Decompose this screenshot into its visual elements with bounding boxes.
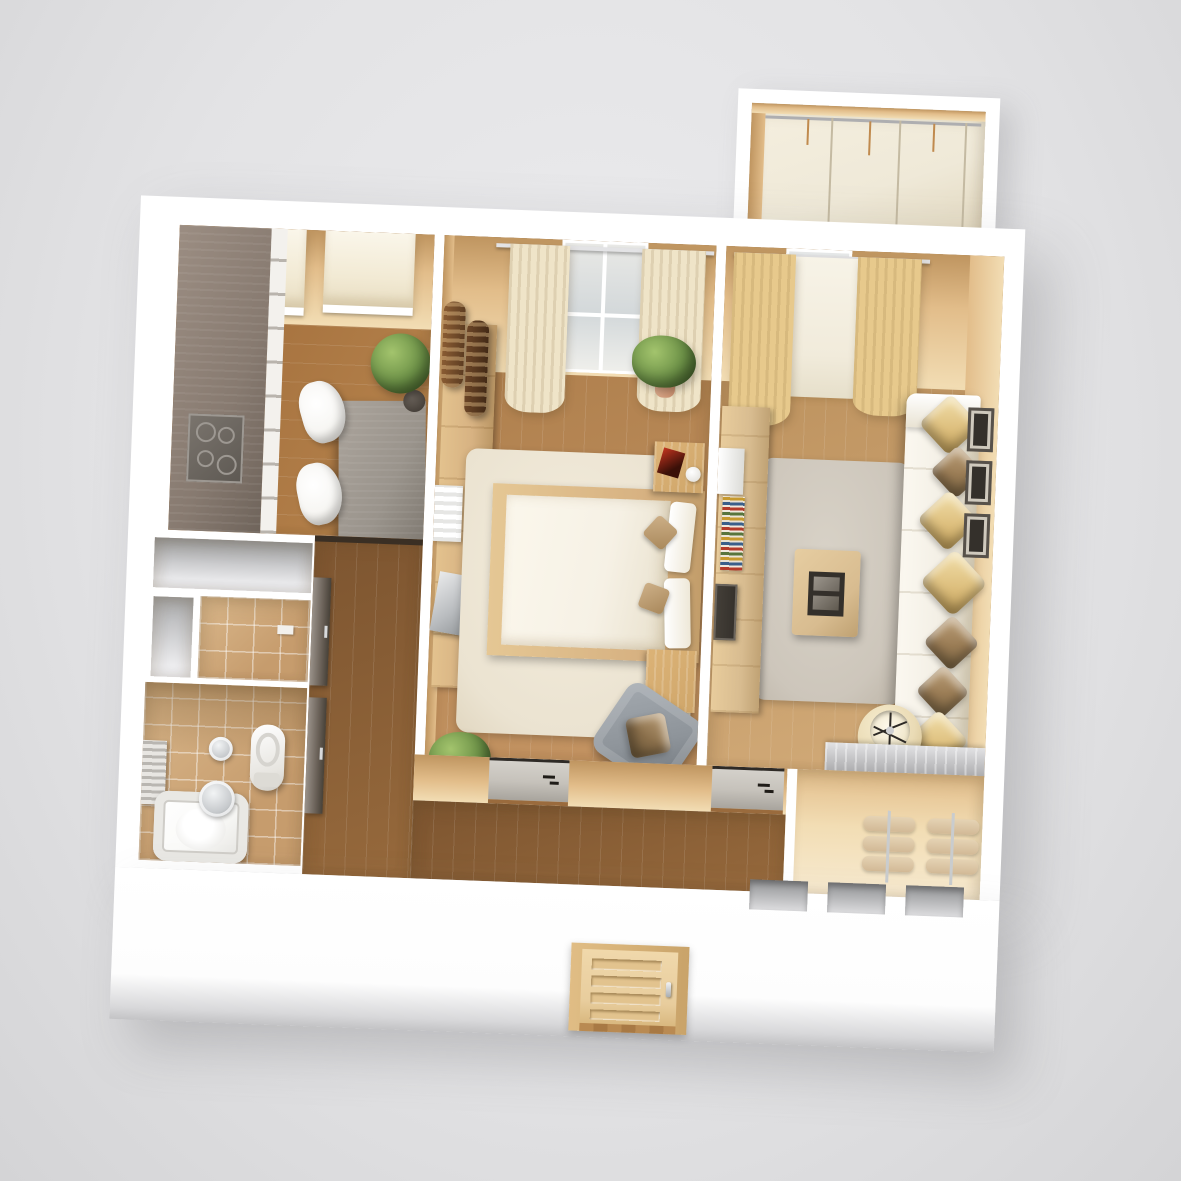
- living-room: [707, 246, 1005, 776]
- closet-door-dark: [309, 577, 331, 686]
- topiary-plant: [370, 332, 432, 394]
- kitchen-roman-blind: [323, 231, 416, 310]
- balcony-walls: [733, 88, 1000, 238]
- door-panel: [590, 992, 660, 1006]
- dining-table: [338, 401, 425, 540]
- decor-vase: [441, 301, 466, 388]
- bathroom: [138, 682, 307, 866]
- render-backdrop: [0, 0, 1181, 1181]
- bed-pillow: [664, 578, 691, 648]
- wall-niche: [905, 885, 964, 917]
- cooktop: [186, 413, 245, 483]
- interior-door-living: [711, 766, 785, 811]
- decor-vase: [464, 320, 490, 417]
- glass-bowl: [208, 736, 233, 761]
- armchair-pillow: [625, 712, 672, 759]
- nightstand: [653, 441, 705, 493]
- door-handle: [758, 784, 770, 787]
- burner: [216, 455, 237, 476]
- towel-rack: [925, 818, 979, 880]
- wall-niche: [749, 879, 808, 911]
- burner: [196, 422, 217, 443]
- wall-niche: [827, 882, 886, 914]
- coffee-table: [792, 549, 861, 637]
- closet-door-dark: [304, 697, 326, 814]
- tv-screen: [713, 584, 737, 641]
- apartment-floor-plan: [0, 0, 1181, 1181]
- media-device: [717, 448, 745, 495]
- window-mullion: [961, 123, 967, 233]
- picture-frame: [963, 513, 991, 558]
- pillow-bronze: [916, 665, 970, 719]
- kitchen-counter: [168, 225, 272, 533]
- gold-curtain-left: [728, 252, 797, 426]
- pillow-bronze: [923, 615, 980, 672]
- door-panel: [591, 975, 661, 989]
- red-book: [657, 447, 685, 478]
- hallway-vertical: [302, 535, 423, 878]
- blind-cord: [806, 119, 809, 145]
- picture-frame: [967, 407, 995, 452]
- door-panel: [592, 958, 662, 972]
- towel-rack: [861, 816, 915, 878]
- balcony: [747, 103, 986, 238]
- entrance-door: [580, 949, 679, 1027]
- toilet-seat: [255, 732, 280, 767]
- door-handle: [319, 748, 322, 760]
- window-mullion: [895, 120, 901, 230]
- burner: [197, 450, 215, 468]
- door-handle: [765, 790, 774, 793]
- door-handle: [324, 626, 327, 638]
- table-tray: [807, 571, 845, 616]
- book-stack: [720, 496, 745, 571]
- toilet-tank: [253, 772, 280, 787]
- pillow-gold: [920, 549, 988, 617]
- bedroom-curtain-left: [504, 244, 570, 414]
- mattress-duvet: [501, 495, 671, 651]
- wc-room: [198, 596, 311, 682]
- narrow-niche: [151, 596, 194, 677]
- radiator: [433, 485, 463, 542]
- kitchen: [168, 225, 435, 540]
- blind-cord: [868, 121, 871, 155]
- entrance-door-frame: [568, 942, 689, 1034]
- tray-item: [813, 577, 840, 592]
- hallway-horizontal: [410, 800, 786, 892]
- window-mullion: [599, 241, 608, 373]
- door-panel: [590, 1009, 660, 1022]
- double-bed: [487, 483, 705, 663]
- closet-room: [783, 769, 985, 900]
- balcony-left-wall: [747, 103, 766, 229]
- toilet: [249, 724, 286, 791]
- bedroom: [425, 235, 717, 765]
- storage-niche: [153, 537, 313, 593]
- door-handle: [550, 782, 559, 785]
- mug: [685, 467, 701, 483]
- tray-item: [813, 596, 840, 611]
- lamp-finial: [886, 726, 894, 734]
- flush-plate: [277, 625, 293, 635]
- door-handle: [666, 982, 672, 997]
- interior-door-bedroom: [488, 757, 570, 802]
- blind-cord: [932, 124, 935, 152]
- burner: [218, 427, 236, 445]
- door-handle: [543, 775, 555, 778]
- window-mullion: [827, 118, 833, 228]
- picture-frame: [965, 460, 993, 505]
